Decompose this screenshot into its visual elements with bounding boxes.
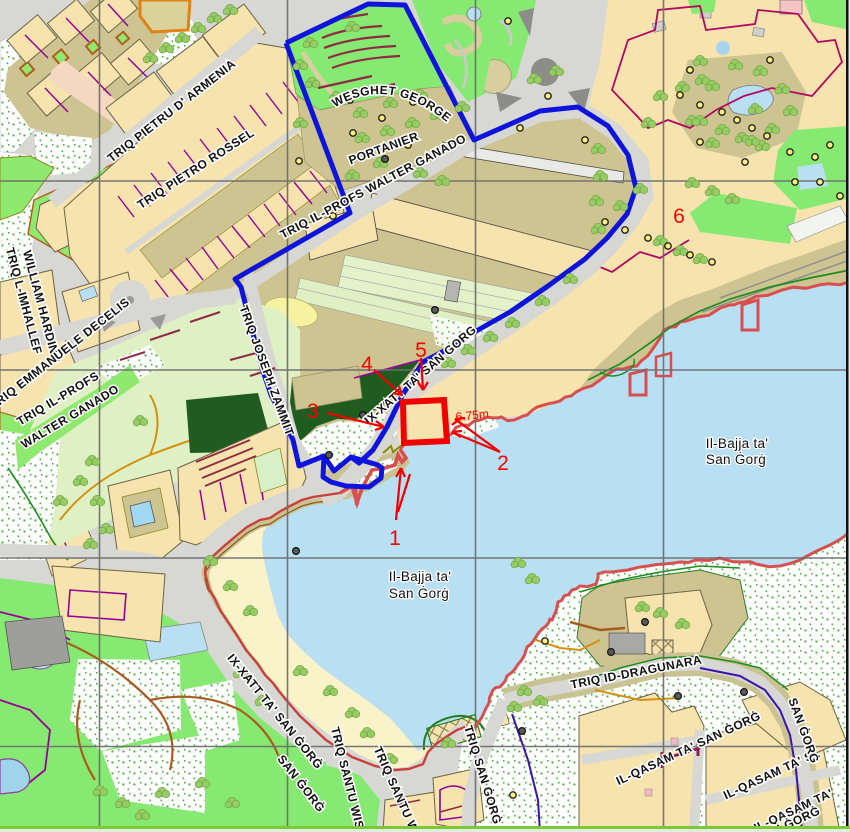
svg-text:5: 5 <box>415 339 427 362</box>
svg-text:3: 3 <box>307 400 319 423</box>
svg-text:San Ġorġ: San Ġorġ <box>389 586 449 601</box>
svg-text:1: 1 <box>389 527 401 550</box>
svg-text:6: 6 <box>673 205 685 228</box>
svg-text:Il-Bajja ta': Il-Bajja ta' <box>389 569 451 584</box>
svg-text:Il-Bajja ta': Il-Bajja ta' <box>706 436 768 451</box>
svg-text:4: 4 <box>361 353 373 376</box>
svg-text:2: 2 <box>497 452 509 475</box>
svg-text:San Ġorġ: San Ġorġ <box>706 452 766 467</box>
